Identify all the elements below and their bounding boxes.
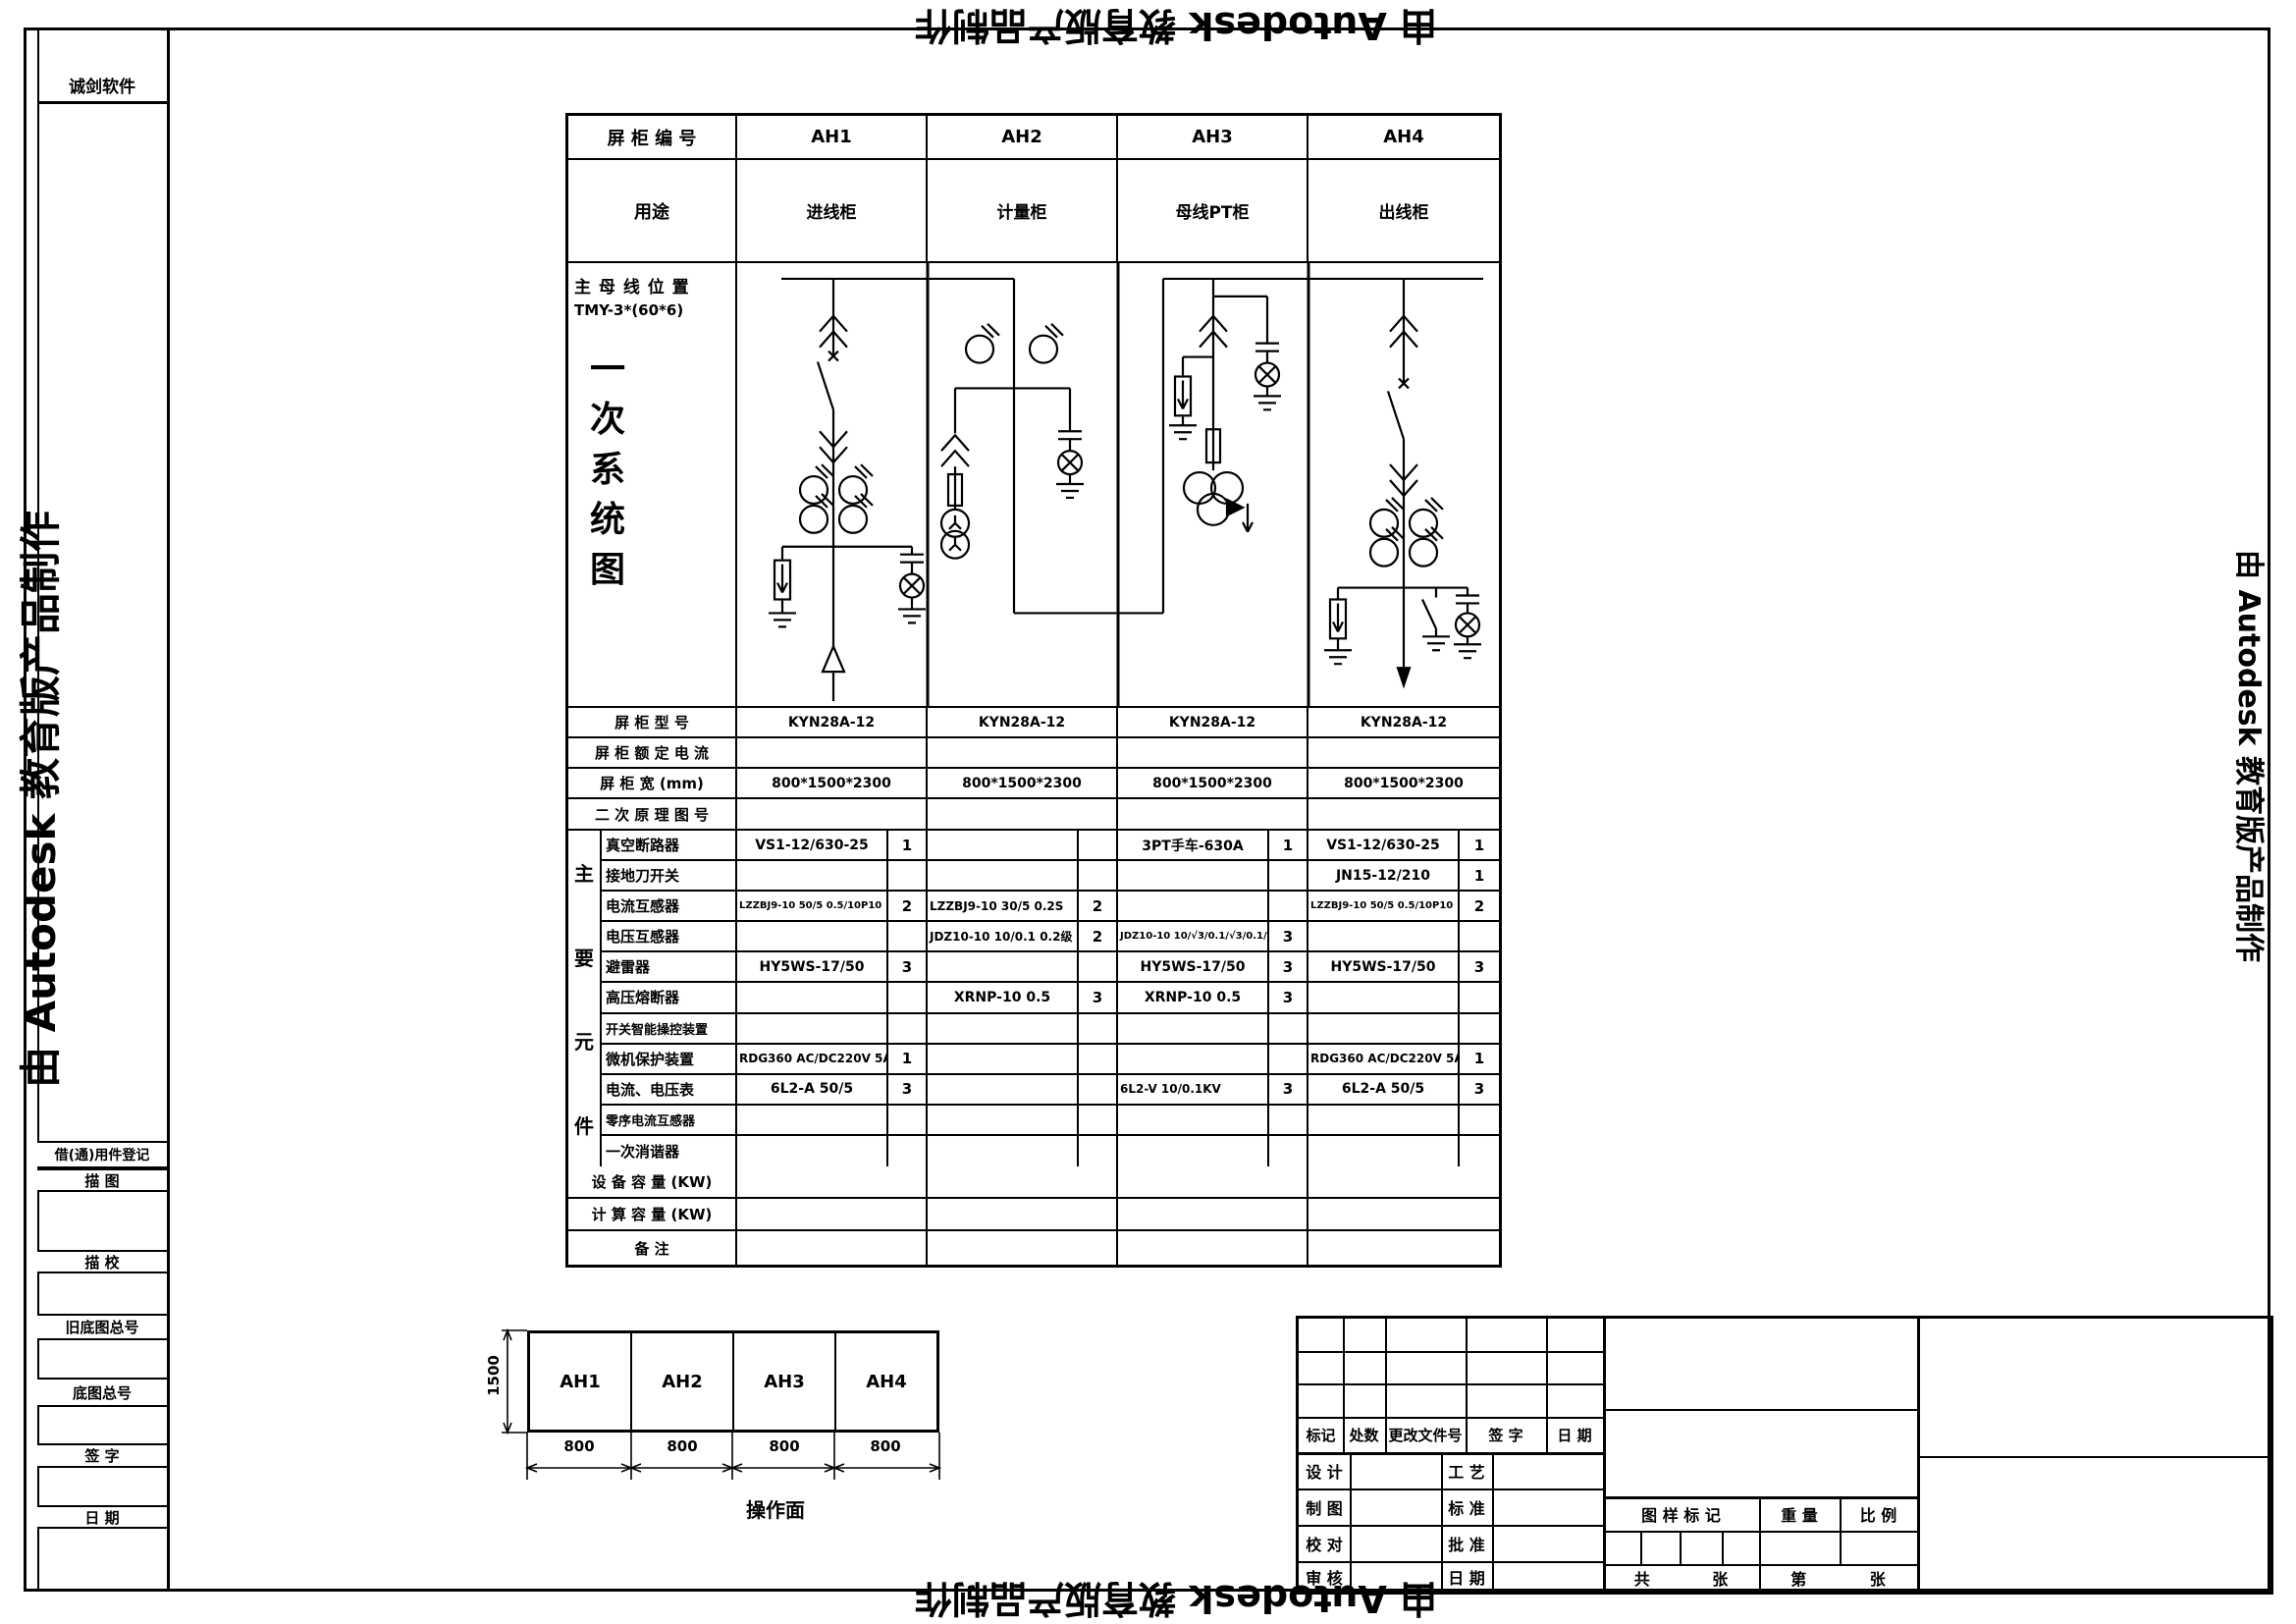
component-value: HY5WS-17/50 — [1118, 952, 1269, 983]
component-qty — [888, 1136, 928, 1166]
component-qty: 1 — [1269, 831, 1308, 861]
rated-current-ah2 — [928, 738, 1118, 769]
component-label: 微机保护装置 — [602, 1045, 737, 1075]
component-qty — [888, 861, 928, 892]
component-value: XRNP-10 0.5 — [1118, 983, 1269, 1013]
group-char: 要 — [574, 943, 594, 971]
component-label: 开关智能操控装置 — [602, 1014, 737, 1045]
size-label: 屏 柜 宽 (mm) — [568, 769, 737, 799]
component-value — [1308, 983, 1460, 1013]
component-qty: 3 — [1079, 983, 1118, 1013]
device-capacity-row: 设 备 容 量 (KW) — [568, 1166, 1499, 1199]
component-label: 真空断路器 — [602, 831, 737, 861]
size-ah3: 800*1500*2300 — [1118, 769, 1308, 799]
group-char: 主 — [574, 858, 594, 887]
secondary-ah4 — [1308, 799, 1499, 831]
stamp-label: 图 样 标 记 — [1603, 1496, 1759, 1531]
calc-capacity-row: 计 算 容 量 (KW) — [568, 1199, 1499, 1231]
model-ah3: KYN28A-12 — [1118, 708, 1308, 738]
sign-date-label: 日 期 — [1441, 1561, 1492, 1592]
diagram-label-cell: 主 母 线 位 置 TMY-3*(60*6) 一 次 系 统 图 — [568, 263, 737, 708]
component-value: RDG360 AC/DC220V 5A — [737, 1045, 888, 1075]
component-qty — [1079, 1136, 1118, 1166]
component-value: LZZBJ9-10 30/5 0.2S — [928, 892, 1079, 922]
width-dimension-4: 800 — [856, 1437, 915, 1455]
size-row: 屏 柜 宽 (mm) 800*1500*2300 800*1500*2300 8… — [568, 769, 1499, 799]
remark-ah1 — [737, 1231, 928, 1265]
component-qty: 3 — [1460, 1075, 1499, 1106]
component-qty: 1 — [1460, 861, 1499, 892]
component-qty: 2 — [888, 892, 928, 922]
rev-header-file: 更改文件号 — [1385, 1417, 1466, 1452]
component-value — [928, 1075, 1079, 1106]
device-capacity-ah2 — [928, 1166, 1118, 1199]
component-qty — [1079, 1106, 1118, 1136]
panel-header-ah1: AH1 — [737, 116, 928, 160]
secondary-ah1 — [737, 799, 928, 831]
component-value: 6L2-V 10/0.1KV — [1118, 1075, 1269, 1106]
rated-current-ah3 — [1118, 738, 1308, 769]
component-label: 避雷器 — [602, 952, 737, 983]
component-value — [737, 983, 888, 1013]
component-value: JDZ10-10 10/0.1 0.2级 — [928, 922, 1079, 952]
component-qty: 3 — [888, 1075, 928, 1106]
component-value — [1308, 1106, 1460, 1136]
component-value — [928, 861, 1079, 892]
component-value: LZZBJ9-10 50/5 0.5/10P10 — [1308, 892, 1460, 922]
size-ah4: 800*1500*2300 — [1308, 769, 1499, 799]
rated-current-ah1 — [737, 738, 928, 769]
component-value — [1118, 1014, 1269, 1045]
purpose-label: 用途 — [568, 160, 737, 263]
group-char: 件 — [574, 1110, 594, 1139]
title-char: 图 — [590, 545, 625, 595]
component-value — [1308, 922, 1460, 952]
component-label: 一次消谐器 — [602, 1136, 737, 1166]
component-qty: 3 — [888, 952, 928, 983]
drawing-canvas: 由 Autodesk 教育版产品制作 由 Autodesk 教育版产品制作 由 … — [0, 0, 2296, 1624]
component-value: 3PT手车-630A — [1118, 831, 1269, 861]
model-ah1: KYN28A-12 — [737, 708, 928, 738]
device-capacity-ah4 — [1308, 1166, 1499, 1199]
panel-header-ah2: AH2 — [928, 116, 1118, 160]
component-value: JN15-12/210 — [1308, 861, 1460, 892]
component-label: 电流互感器 — [602, 892, 737, 922]
secondary-ah3 — [1118, 799, 1308, 831]
component-value: JDZ10-10 10/√3/0.1/√3/0.1/3kV — [1118, 922, 1269, 952]
component-value — [1118, 1045, 1269, 1075]
component-value: 6L2-A 50/5 — [737, 1075, 888, 1106]
component-label: 零序电流互感器 — [602, 1106, 737, 1136]
panel-header-ah4: AH4 — [1308, 116, 1499, 160]
busbar-spec: TMY-3*(60*6) — [574, 301, 683, 319]
rev-header-date: 日 期 — [1546, 1417, 1603, 1452]
rated-current-row: 屏 柜 额 定 电 流 — [568, 738, 1499, 769]
component-value — [1308, 1136, 1460, 1166]
component-value: XRNP-10 0.5 — [928, 983, 1079, 1013]
component-value: VS1-12/630-25 — [737, 831, 888, 861]
component-value: HY5WS-17/50 — [737, 952, 888, 983]
component-value — [928, 1106, 1079, 1136]
component-qty — [1269, 1136, 1308, 1166]
secondary-row: 二 次 原 理 图 号 — [568, 799, 1499, 831]
component-value — [737, 1014, 888, 1045]
software-label: 诚剑软件 — [37, 27, 167, 104]
component-qty — [1079, 831, 1118, 861]
secondary-label: 二 次 原 理 图 号 — [568, 799, 737, 831]
sign-proof-label: 校 对 — [1299, 1525, 1350, 1561]
purpose-row: 用途 进线柜 计量柜 母线PT柜 出线柜 — [568, 160, 1499, 263]
front-view-caption: 操作面 — [712, 1494, 839, 1523]
component-value — [737, 1106, 888, 1136]
rev-header-mark: 标记 — [1299, 1417, 1343, 1452]
diagram-title: 一 次 系 统 图 — [590, 345, 625, 596]
title-char: 一 — [590, 345, 625, 395]
component-qty — [888, 1014, 928, 1045]
width-dimension-1: 800 — [550, 1437, 609, 1455]
sheet-number-suffix: 张 — [1870, 1566, 1886, 1590]
sidebar-row-date: 日 期 — [37, 1505, 167, 1529]
component-value — [737, 922, 888, 952]
title-char: 系 — [590, 445, 625, 495]
component-qty: 3 — [1269, 1075, 1308, 1106]
sidebar-row-base: 底图总号 — [37, 1378, 167, 1407]
rev-header-count: 处数 — [1343, 1417, 1385, 1452]
device-capacity-label: 设 备 容 量 (KW) — [568, 1166, 737, 1199]
remark-row: 备 注 — [568, 1231, 1499, 1265]
component-qty — [1079, 861, 1118, 892]
sidebar-row-check: 描 校 — [37, 1250, 167, 1273]
component-qty — [1079, 952, 1118, 983]
title-char: 统 — [590, 495, 625, 545]
sheets-total: 共 张 — [1603, 1564, 1759, 1592]
component-value — [1118, 1106, 1269, 1136]
component-value — [1118, 1136, 1269, 1166]
component-label: 接地刀开关 — [602, 861, 737, 892]
component-value — [928, 1045, 1079, 1075]
sign-design-label: 设 计 — [1299, 1452, 1350, 1489]
component-value: RDG360 AC/DC220V 5A — [1308, 1045, 1460, 1075]
sidebar-row-old-base: 旧底图总号 — [37, 1314, 167, 1340]
height-dimension: 1500 — [485, 1351, 503, 1400]
component-value: LZZBJ9-10 50/5 0.5/10P10 — [737, 892, 888, 922]
scale-label: 比 例 — [1840, 1496, 1917, 1531]
size-ah1: 800*1500*2300 — [737, 769, 928, 799]
width-dimension-2: 800 — [653, 1437, 712, 1455]
component-qty: 2 — [1460, 892, 1499, 922]
component-value — [737, 1136, 888, 1166]
component-label: 高压熔断器 — [602, 983, 737, 1013]
sidebar-row-sign: 签 字 — [37, 1443, 167, 1468]
sign-approve-label: 批 准 — [1441, 1525, 1492, 1561]
component-qty — [1269, 1106, 1308, 1136]
model-row: 屏 柜 型 号 KYN28A-12 KYN28A-12 KYN28A-12 KY… — [568, 708, 1499, 738]
title-char: 次 — [590, 395, 625, 445]
component-qty — [1460, 983, 1499, 1013]
component-qty: 3 — [1269, 983, 1308, 1013]
component-value: HY5WS-17/50 — [1308, 952, 1460, 983]
sign-standard-label: 标 准 — [1441, 1489, 1492, 1525]
component-qty — [1269, 892, 1308, 922]
sheets-total-prefix: 共 — [1634, 1566, 1650, 1590]
size-ah2: 800*1500*2300 — [928, 769, 1118, 799]
component-qty — [1269, 1014, 1308, 1045]
component-qty: 1 — [888, 831, 928, 861]
component-qty — [888, 1106, 928, 1136]
component-value: VS1-12/630-25 — [1308, 831, 1460, 861]
sign-draft-label: 制 图 — [1299, 1489, 1350, 1525]
calc-capacity-ah2 — [928, 1199, 1118, 1231]
component-qty — [1079, 1075, 1118, 1106]
diagram-row: 主 母 线 位 置 TMY-3*(60*6) 一 次 系 统 图 — [568, 263, 1499, 708]
component-qty — [1460, 1136, 1499, 1166]
component-value — [928, 1014, 1079, 1045]
model-ah2: KYN28A-12 — [928, 708, 1118, 738]
component-qty — [888, 983, 928, 1013]
diagram-svg — [737, 263, 1499, 706]
sheets-total-suffix: 张 — [1712, 1566, 1728, 1590]
calc-capacity-label: 计 算 容 量 (KW) — [568, 1199, 737, 1231]
component-value — [737, 861, 888, 892]
width-dimension-3: 800 — [755, 1437, 814, 1455]
panel-header-ah3: AH3 — [1118, 116, 1308, 160]
component-label: 电压互感器 — [602, 922, 737, 952]
sign-audit-label: 审 核 — [1299, 1561, 1350, 1592]
component-label: 电流、电压表 — [602, 1075, 737, 1106]
sheet-number: 第 张 — [1759, 1564, 1917, 1592]
calc-capacity-ah1 — [737, 1199, 928, 1231]
component-value — [1308, 1014, 1460, 1045]
component-value — [1118, 892, 1269, 922]
component-qty: 2 — [1079, 892, 1118, 922]
sidebar-row-trace: 描 图 — [37, 1168, 167, 1192]
component-qty — [1269, 1045, 1308, 1075]
schedule-table: 屏 柜 编 号 AH1 AH2 AH3 AH4 用途 进线柜 计量柜 母线PT柜… — [565, 113, 1502, 1268]
main-components-label: 主 要 元 件 — [568, 831, 602, 1166]
rated-current-ah4 — [1308, 738, 1499, 769]
sheet-number-prefix: 第 — [1790, 1566, 1806, 1590]
frame-divider — [167, 27, 170, 1592]
component-qty: 3 — [1269, 922, 1308, 952]
purpose-ah3: 母线PT柜 — [1118, 160, 1308, 263]
calc-capacity-ah4 — [1308, 1199, 1499, 1231]
remark-ah3 — [1118, 1231, 1308, 1265]
component-value: 6L2-A 50/5 — [1308, 1075, 1460, 1106]
component-qty — [888, 922, 928, 952]
component-value — [1118, 861, 1269, 892]
panel-number-label: 屏 柜 编 号 — [568, 116, 737, 160]
component-qty — [1460, 1106, 1499, 1136]
front-view-dimensions — [486, 1321, 957, 1488]
rated-current-label: 屏 柜 额 定 电 流 — [568, 738, 737, 769]
sidebar-row-borrow: 借(通)用件登记 — [37, 1141, 167, 1168]
component-grid: 主 要 元 件 真空断路器VS1-12/630-2513PT手车-630A1VS… — [568, 831, 1499, 1166]
sidebar-column — [37, 27, 167, 1592]
component-qty — [1460, 922, 1499, 952]
single-line-diagram — [737, 263, 1499, 708]
rev-header-sign: 签 字 — [1466, 1417, 1546, 1452]
component-qty: 1 — [1460, 1045, 1499, 1075]
component-qty: 1 — [888, 1045, 928, 1075]
panel-number-row: 屏 柜 编 号 AH1 AH2 AH3 AH4 — [568, 116, 1499, 160]
secondary-ah2 — [928, 799, 1118, 831]
model-label: 屏 柜 型 号 — [568, 708, 737, 738]
component-qty — [1079, 1014, 1118, 1045]
component-qty — [1269, 861, 1308, 892]
weight-label: 重 量 — [1759, 1496, 1840, 1531]
model-ah4: KYN28A-12 — [1308, 708, 1499, 738]
title-block: 标记 处数 更改文件号 签 字 日 期 设 计 工 艺 制 图 标 准 校 对 … — [1296, 1316, 2273, 1595]
component-qty — [1460, 1014, 1499, 1045]
calc-capacity-ah3 — [1118, 1199, 1308, 1231]
component-value — [928, 831, 1079, 861]
remark-ah2 — [928, 1231, 1118, 1265]
remark-label: 备 注 — [568, 1231, 737, 1265]
component-qty: 3 — [1460, 952, 1499, 983]
component-qty: 3 — [1269, 952, 1308, 983]
component-qty — [1079, 1045, 1118, 1075]
remark-ah4 — [1308, 1231, 1499, 1265]
busbar-position-label: 主 母 线 位 置 — [574, 273, 690, 298]
purpose-ah4: 出线柜 — [1308, 160, 1499, 263]
component-qty: 1 — [1460, 831, 1499, 861]
group-char: 元 — [574, 1026, 594, 1055]
sign-process-label: 工 艺 — [1441, 1452, 1492, 1489]
component-value — [928, 1136, 1079, 1166]
purpose-ah2: 计量柜 — [928, 160, 1118, 263]
purpose-ah1: 进线柜 — [737, 160, 928, 263]
device-capacity-ah1 — [737, 1166, 928, 1199]
component-qty: 2 — [1079, 922, 1118, 952]
device-capacity-ah3 — [1118, 1166, 1308, 1199]
component-value — [928, 952, 1079, 983]
